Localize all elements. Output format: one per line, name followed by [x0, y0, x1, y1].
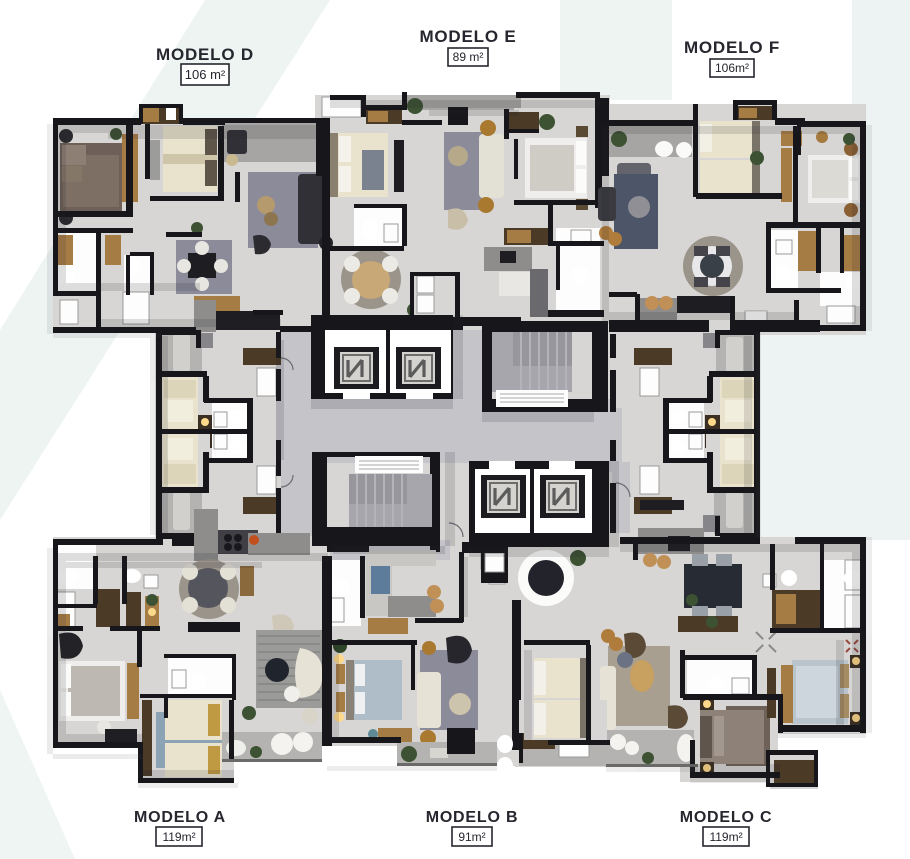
svg-text:106 m²: 106 m² [185, 67, 226, 82]
svg-text:MODELO F: MODELO F [684, 38, 780, 57]
svg-text:91m²: 91m² [458, 830, 485, 844]
svg-text:MODELO A: MODELO A [134, 809, 226, 826]
svg-text:119m²: 119m² [709, 830, 742, 844]
svg-text:MODELO C: MODELO C [680, 809, 773, 826]
svg-text:119m²: 119m² [162, 830, 195, 844]
svg-text:MODELO B: MODELO B [426, 809, 519, 826]
svg-text:MODELO E: MODELO E [419, 27, 516, 46]
svg-text:106m²: 106m² [715, 61, 749, 75]
svg-text:89 m²: 89 m² [453, 50, 484, 64]
svg-text:MODELO D: MODELO D [156, 45, 254, 64]
